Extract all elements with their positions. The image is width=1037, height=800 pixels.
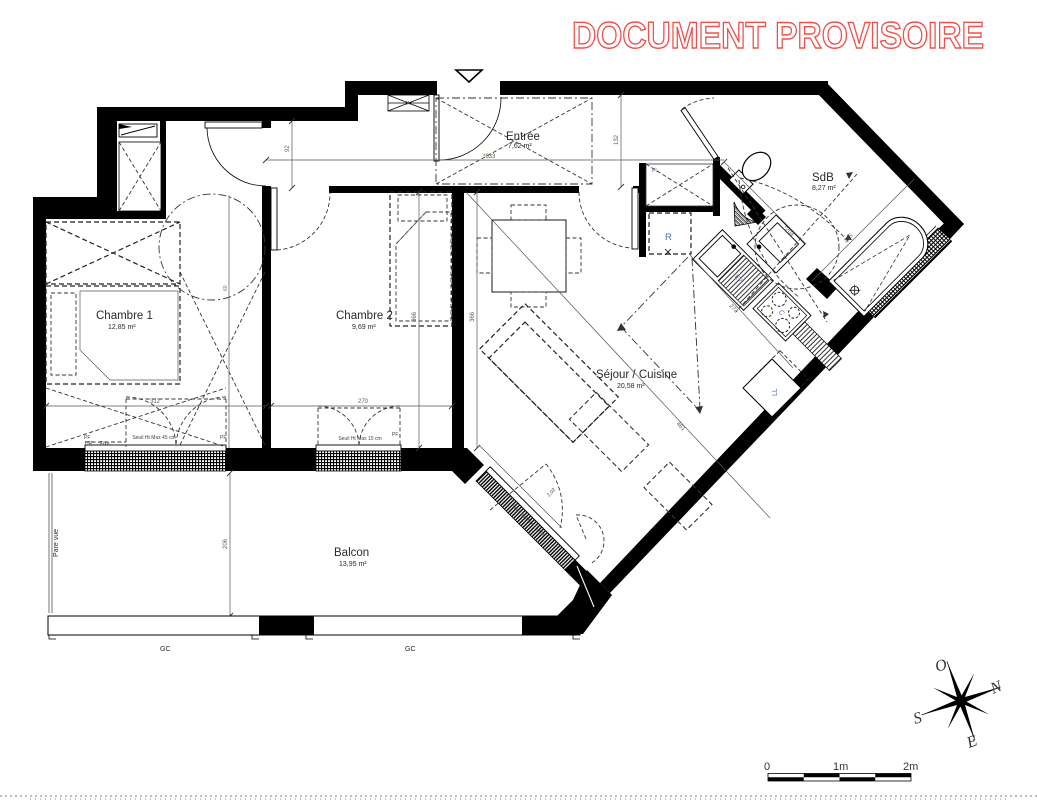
svg-text:9,69 m²: 9,69 m² [352, 324, 376, 331]
svg-text:Seuil Ht Max 15 cm: Seuil Ht Max 15 cm [338, 436, 381, 442]
svg-text:92: 92 [285, 145, 291, 152]
svg-text:PF: PF [392, 432, 398, 438]
svg-text:LL: LL [772, 388, 779, 396]
svg-text:366: 366 [470, 311, 476, 322]
svg-text:366: 366 [412, 311, 418, 322]
svg-text:GC: GC [405, 646, 416, 653]
svg-text:DOCUMENT PROVISOIRE: DOCUMENT PROVISOIRE [572, 15, 984, 56]
svg-text:7,62 m²: 7,62 m² [508, 143, 532, 150]
svg-text:12,85 m²: 12,85 m² [108, 324, 136, 331]
svg-text:1m: 1m [833, 761, 848, 773]
svg-text:132: 132 [614, 134, 620, 145]
svg-text:SdB: SdB [812, 172, 834, 184]
svg-text:13,95 m²: 13,95 m² [339, 561, 367, 568]
svg-text:R: R [665, 232, 672, 243]
svg-text:20,58 m²: 20,58 m² [617, 383, 645, 390]
svg-text:TA: TA [404, 101, 411, 107]
svg-text:60: 60 [223, 285, 229, 291]
svg-text:270: 270 [358, 399, 369, 405]
svg-text:8,27 m²: 8,27 m² [812, 185, 836, 192]
svg-text:Pare vue: Pare vue [53, 529, 60, 557]
svg-text:PF: PF [220, 435, 226, 441]
svg-text:Balcon: Balcon [334, 547, 369, 559]
svg-text:2m: 2m [903, 761, 918, 773]
svg-text:206: 206 [223, 538, 229, 549]
svg-text:Seuil Ht Max 45 cm: Seuil Ht Max 45 cm [132, 435, 175, 441]
svg-text:*633: *633 [483, 154, 496, 160]
svg-text:PL: PL [652, 168, 658, 174]
svg-text:Chambre 2: Chambre 2 [336, 310, 393, 322]
svg-text:GC: GC [160, 646, 171, 653]
svg-text:312: 312 [150, 399, 161, 405]
svg-text:Chambre 1: Chambre 1 [96, 310, 153, 322]
svg-text:0: 0 [764, 761, 770, 773]
svg-text:Entrée: Entrée [506, 131, 540, 143]
